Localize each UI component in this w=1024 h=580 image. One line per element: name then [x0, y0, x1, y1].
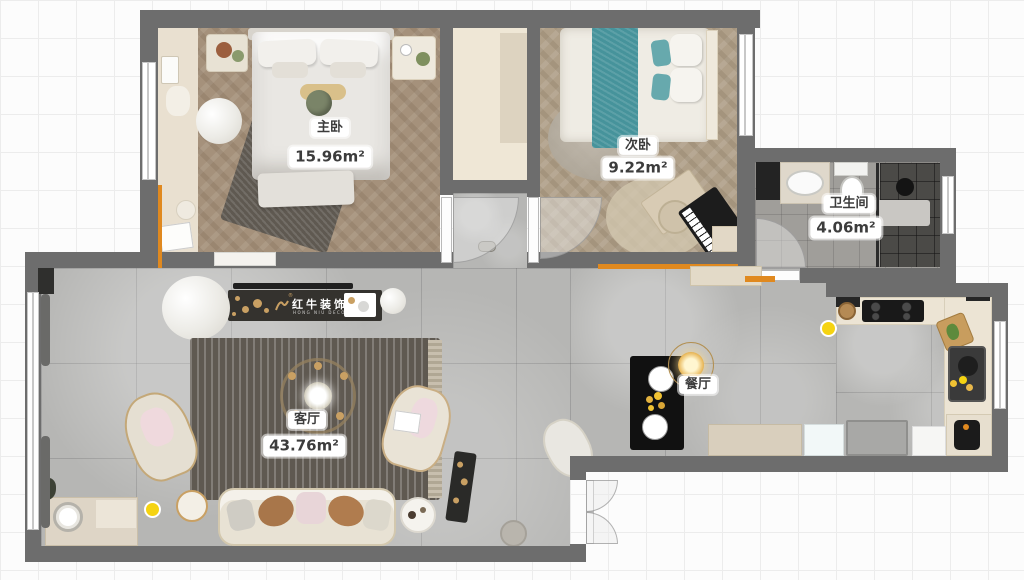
toilet-tank — [834, 162, 868, 176]
gold-flower-icon — [453, 497, 460, 504]
table-decor-dot — [420, 507, 426, 513]
wall-closet-right-upper — [527, 28, 540, 197]
gold-dot-icon — [235, 296, 240, 301]
label-bathroom: 卫生间 — [823, 195, 874, 213]
sofa-pillow-pink — [296, 492, 326, 524]
second-pillow — [670, 68, 702, 102]
entry-door-swing — [586, 480, 618, 512]
gold-flower-icon — [457, 461, 464, 468]
vegetable-decor — [944, 322, 961, 341]
label-living-area: 43.76m² — [263, 436, 345, 457]
gold-flower-icon — [654, 392, 662, 400]
chandelier-bulb — [340, 372, 348, 380]
chandelier-bulb — [314, 362, 322, 370]
gold-flower-icon — [648, 405, 654, 411]
tv-screen — [233, 283, 353, 289]
second-pillow — [670, 34, 702, 66]
registered-mark: ® — [288, 293, 293, 299]
wall-living-link — [25, 252, 143, 268]
dressing-stool — [176, 200, 196, 220]
dressing-desk — [158, 222, 193, 252]
fridge — [846, 420, 908, 456]
sideboard — [708, 424, 802, 456]
wall-living-bottom — [25, 546, 586, 562]
master-tv-console — [214, 252, 276, 266]
gray-circle-icon — [358, 301, 369, 312]
pendant-glow — [678, 352, 704, 378]
gold-flower-icon — [460, 478, 468, 486]
wall-master-right-upper — [440, 28, 453, 195]
flower-icon — [950, 380, 957, 387]
chandelier-glow — [304, 382, 332, 410]
chandelier-bulb — [336, 412, 344, 420]
flower-icon — [959, 376, 967, 384]
machine-knob — [963, 424, 969, 430]
wall-top — [140, 10, 760, 28]
master-plant-decor — [232, 50, 244, 62]
yellow-flowers — [950, 376, 976, 394]
wall-kitchen-top — [826, 283, 1008, 297]
label-living-room: 客厅 — [288, 411, 326, 429]
window-bath-right — [942, 176, 954, 234]
label-bathroom-area: 4.06m² — [810, 218, 881, 239]
dining-plate — [642, 414, 668, 440]
window-kitchen-right — [994, 321, 1006, 409]
gold-mark-icon — [348, 297, 355, 304]
window-second-right — [739, 34, 753, 136]
curtain — [41, 436, 50, 528]
wall-closet-bottom — [440, 180, 540, 193]
master-bed-throw — [257, 170, 354, 207]
label-master-bedroom: 主卧 — [311, 119, 349, 137]
side-table-gold — [176, 490, 208, 522]
wall-bath-top — [745, 148, 956, 162]
curtain — [41, 294, 50, 366]
second-teal-pillow — [651, 73, 672, 101]
wall-master-bottom — [140, 252, 453, 268]
dressing-mirror — [161, 56, 179, 84]
brand-logo-cabinet: 红牛装饰 ® HONG NIU DECORATION — [228, 290, 382, 321]
floor-plan-canvas: 红牛装饰 ® HONG NIU DECORATION — [0, 0, 1024, 580]
shower-drain — [896, 178, 914, 196]
dressing-robe — [166, 86, 190, 116]
side-table-round — [400, 497, 436, 533]
second-door-leaf — [528, 197, 539, 263]
master-vase-decor — [400, 44, 412, 56]
label-second-area: 9.22m² — [602, 158, 673, 179]
chandelier-bulb — [288, 372, 296, 380]
table-decor-dot — [408, 511, 416, 519]
smart-light-dot — [144, 501, 161, 518]
second-bed-headboard — [706, 30, 718, 140]
sink-basin — [958, 356, 978, 376]
master-pouf — [196, 98, 242, 144]
bathroom-sink — [786, 170, 824, 196]
wash-basin — [53, 502, 83, 532]
master-plant-decor — [416, 52, 430, 66]
wall-dining-bottom — [570, 456, 1008, 472]
living-plant-white-small — [380, 288, 406, 314]
coffee-machine — [954, 420, 980, 450]
second-nightstand — [712, 226, 740, 252]
master-round-pillow — [306, 90, 332, 116]
shower-glass — [876, 163, 879, 267]
magazine — [393, 410, 422, 433]
label-master-area: 15.96m² — [289, 147, 371, 168]
smart-light-dot — [820, 320, 837, 337]
closet-shelf — [500, 33, 527, 143]
master-accent-strip — [158, 185, 162, 268]
second-teal-pillow — [650, 39, 671, 67]
master-tray-decor — [216, 42, 232, 58]
window-living-left — [27, 292, 39, 530]
master-pillow-small — [330, 62, 366, 78]
gold-dot-icon — [264, 308, 269, 313]
bull-logo-icon — [274, 297, 290, 313]
flower-icon — [966, 384, 973, 391]
label-second-bedroom: 次卧 — [619, 137, 657, 155]
cooktop — [862, 300, 924, 322]
bathroom-tall-cabinet — [756, 162, 780, 200]
master-door-leaf — [441, 197, 452, 263]
gold-flower-icon — [658, 402, 665, 409]
entry-pillar — [38, 268, 54, 294]
entry-cabinet — [804, 424, 844, 456]
laundry-counter — [96, 500, 136, 528]
wall-entry-step-bottom — [570, 544, 586, 562]
gold-dot-icon — [232, 312, 236, 316]
dining-centerpiece — [644, 392, 670, 414]
label-dining-room: 餐厅 — [679, 376, 717, 394]
living-plant-white — [162, 276, 230, 340]
second-teal-runner — [592, 26, 638, 148]
logo-card — [344, 293, 376, 317]
master-pillow-small — [272, 62, 308, 78]
entry-door-swing — [586, 512, 618, 544]
gold-dot-icon — [242, 306, 249, 313]
kitchen-base-cabinet — [912, 426, 946, 456]
gold-flower-icon — [646, 396, 653, 403]
wall-bath-bottom — [800, 268, 956, 283]
gold-dot-icon — [253, 299, 262, 308]
bathroom-accent-strip — [745, 276, 775, 282]
floor-pouf — [500, 520, 527, 547]
woven-basket — [838, 302, 856, 320]
window-master-left — [142, 62, 156, 180]
